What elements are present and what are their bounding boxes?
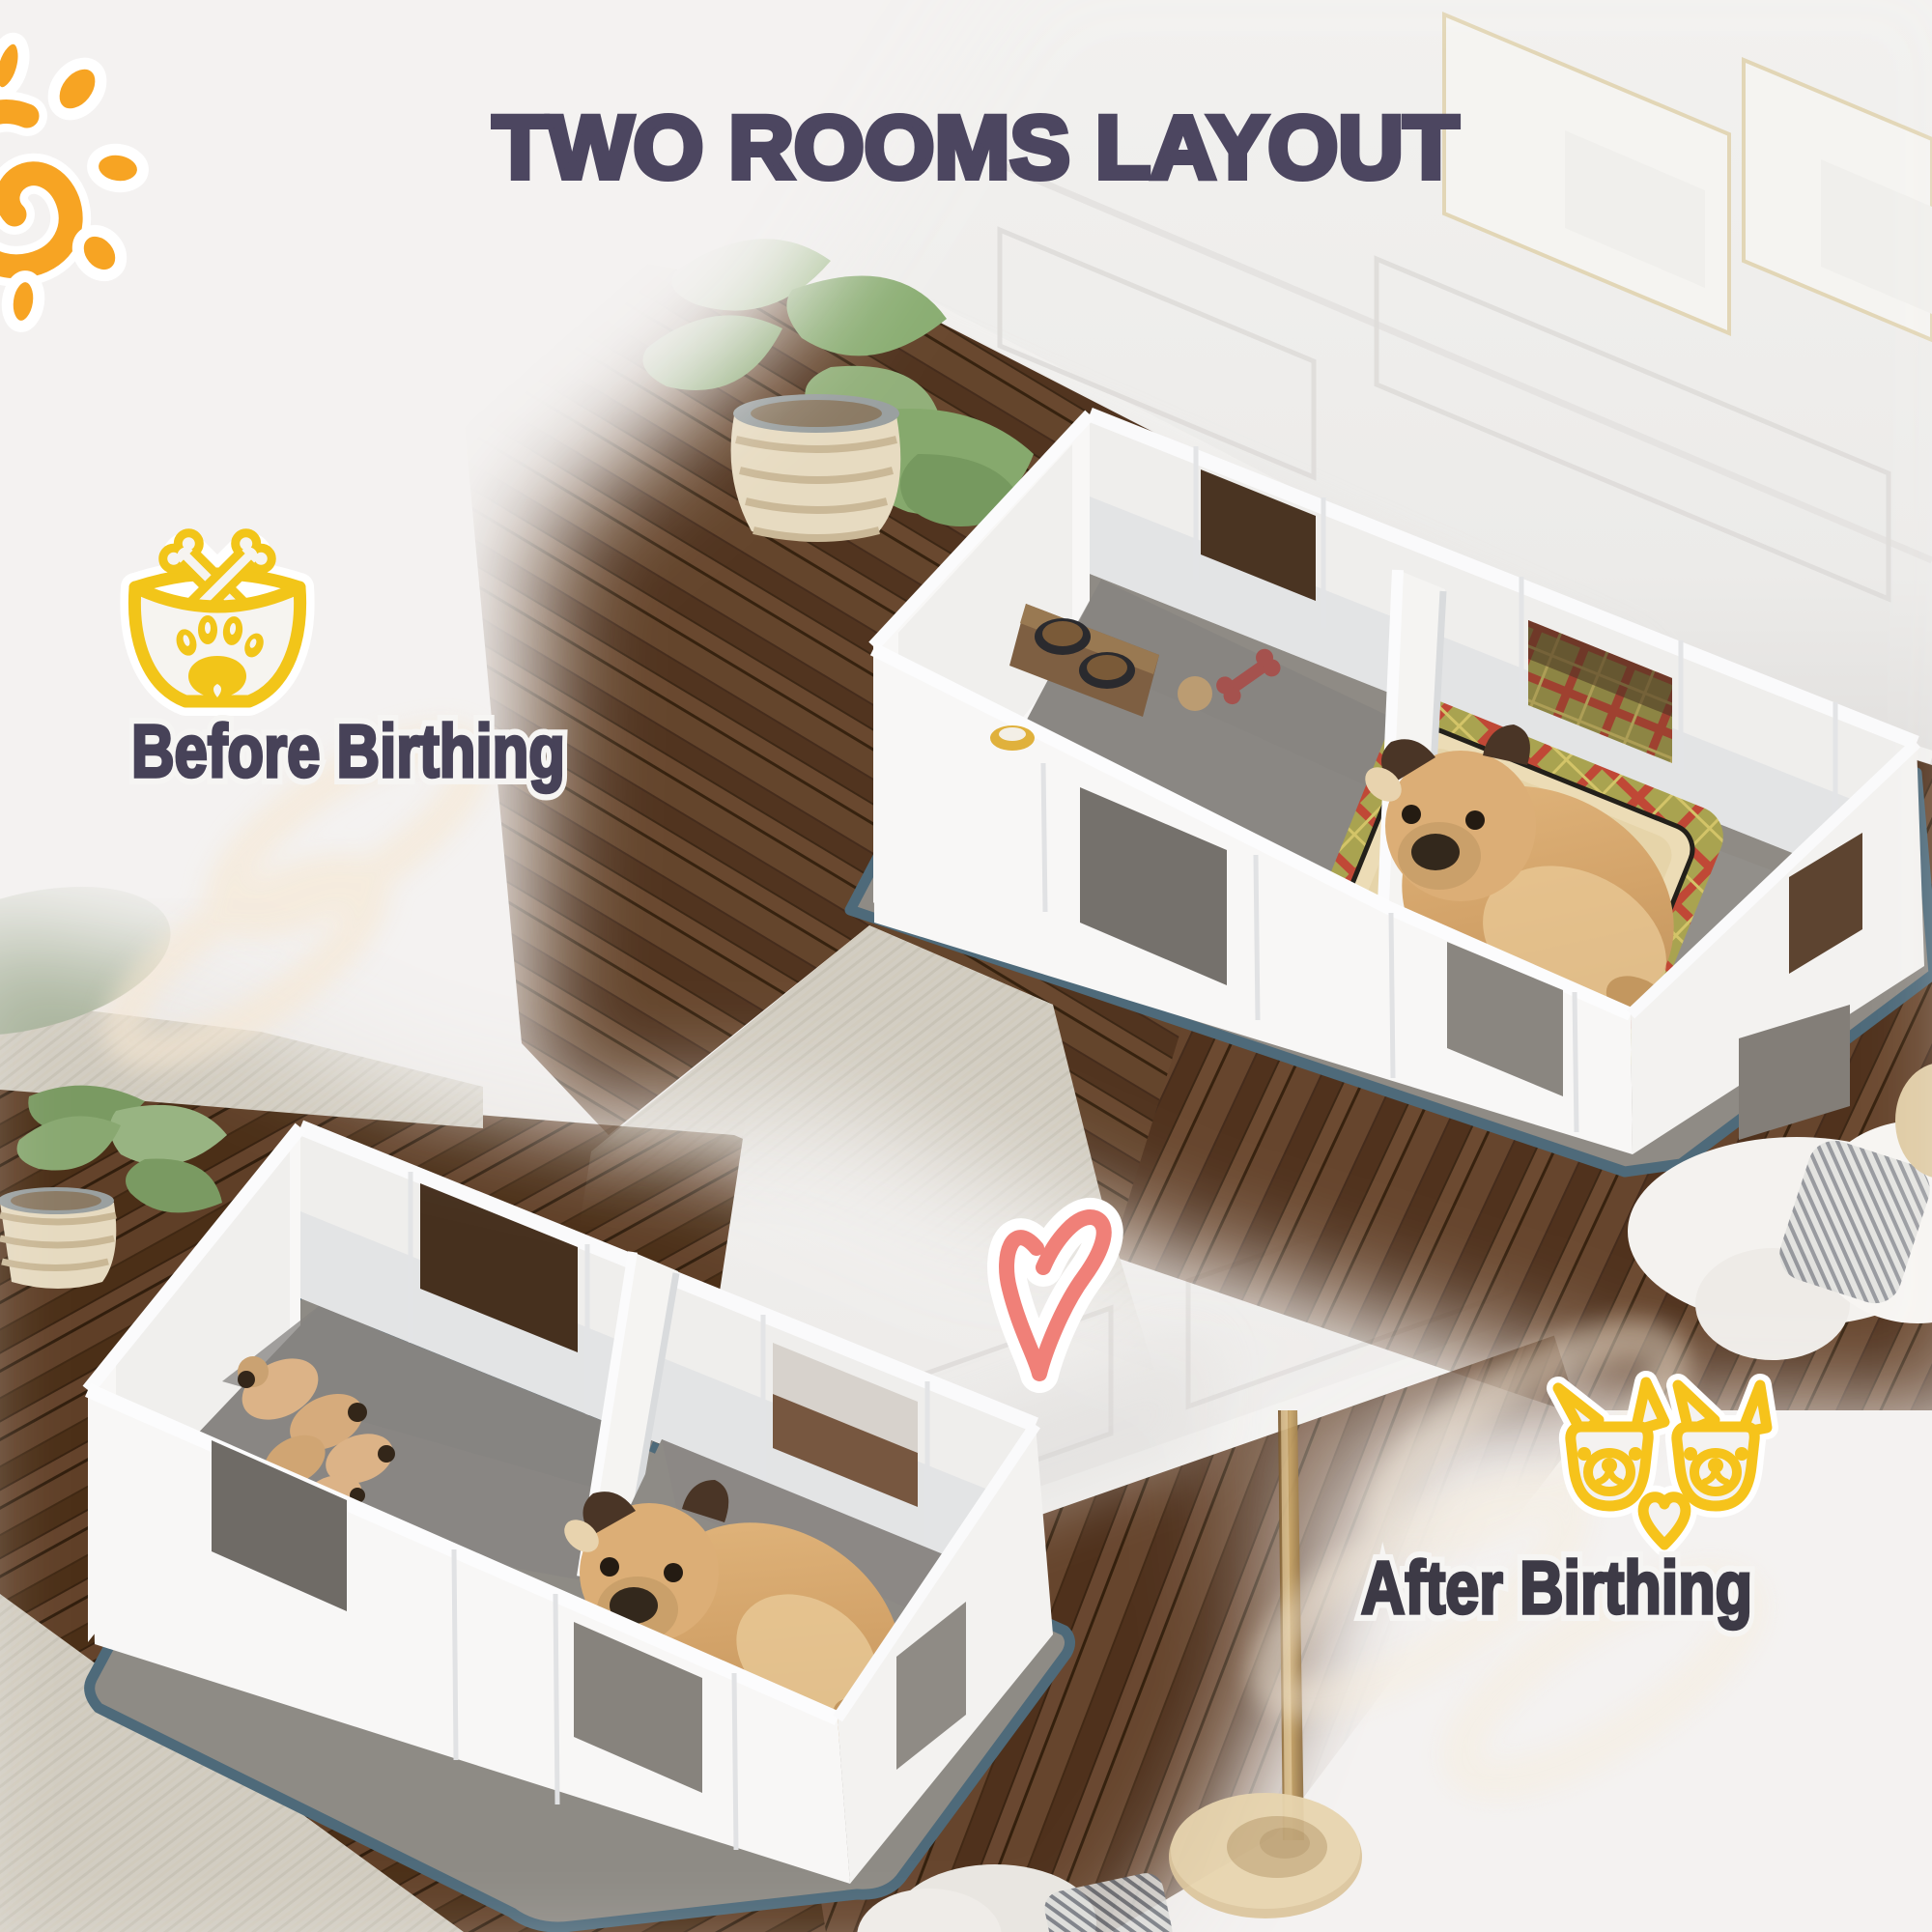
svg-text:After Birthing: After Birthing bbox=[1361, 1547, 1752, 1630]
svg-text:TWO ROOMS LAYOUT: TWO ROOMS LAYOUT bbox=[493, 99, 1459, 197]
svg-text:Before Birthing: Before Birthing bbox=[131, 710, 565, 793]
